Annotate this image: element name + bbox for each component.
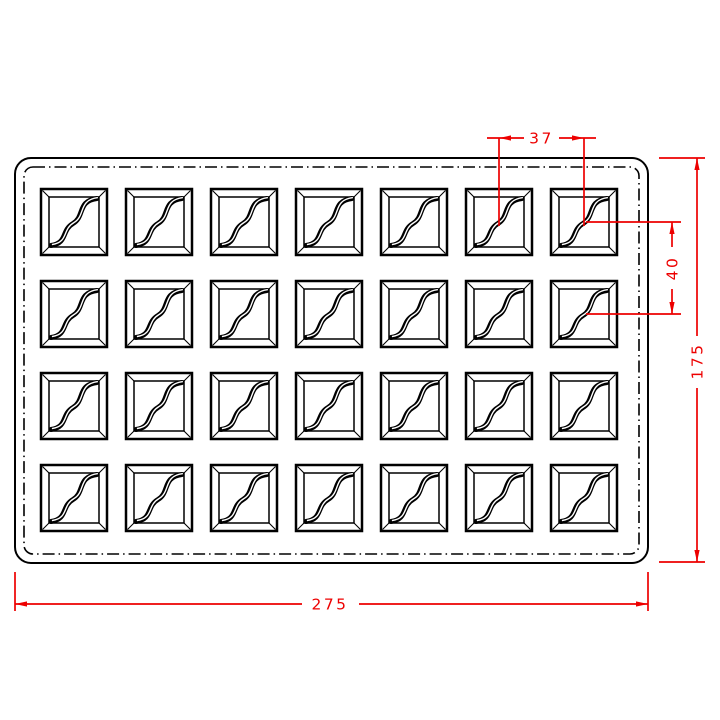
cavity — [381, 281, 447, 347]
cavity — [381, 373, 447, 439]
cavity — [211, 281, 277, 347]
arrowhead — [636, 601, 648, 606]
arrowhead — [694, 550, 699, 562]
cavity — [41, 189, 107, 255]
arrowhead — [694, 158, 699, 170]
cavity — [126, 465, 192, 531]
cavity — [381, 465, 447, 531]
cavity — [551, 373, 617, 439]
dimension-tray-height: 175 — [659, 158, 707, 562]
cavity — [126, 373, 192, 439]
cavity — [381, 189, 447, 255]
dimension-label-275: 275 — [311, 596, 348, 614]
cavity — [466, 281, 532, 347]
cavity — [126, 281, 192, 347]
arrowhead — [15, 601, 27, 606]
dimension-cavity-pitch-horizontal: 37 — [487, 130, 596, 227]
dimension-label-175: 175 — [689, 342, 707, 379]
cavity — [41, 373, 107, 439]
arrowhead — [669, 302, 674, 314]
cavity — [296, 373, 362, 439]
cavity — [126, 189, 192, 255]
cavity — [41, 465, 107, 531]
cavity — [296, 189, 362, 255]
dimension-cavity-pitch-vertical: 40 — [586, 222, 682, 314]
cavity — [211, 373, 277, 439]
dimension-label-37: 37 — [529, 130, 554, 148]
cavity-grid — [41, 189, 617, 531]
cavity — [211, 189, 277, 255]
drawing-svg: 37 40 175 — [0, 0, 720, 720]
cavity — [551, 465, 617, 531]
cavity — [296, 465, 362, 531]
cavity — [466, 465, 532, 531]
arrowhead — [669, 222, 674, 234]
dimension-label-40: 40 — [664, 256, 682, 281]
cavity — [41, 281, 107, 347]
dimension-tray-width: 275 — [15, 572, 648, 614]
cavity — [466, 373, 532, 439]
cavity — [296, 281, 362, 347]
arrowhead — [499, 135, 511, 140]
arrowhead — [572, 135, 584, 140]
technical-drawing: 37 40 175 — [0, 0, 720, 720]
cavity — [211, 465, 277, 531]
